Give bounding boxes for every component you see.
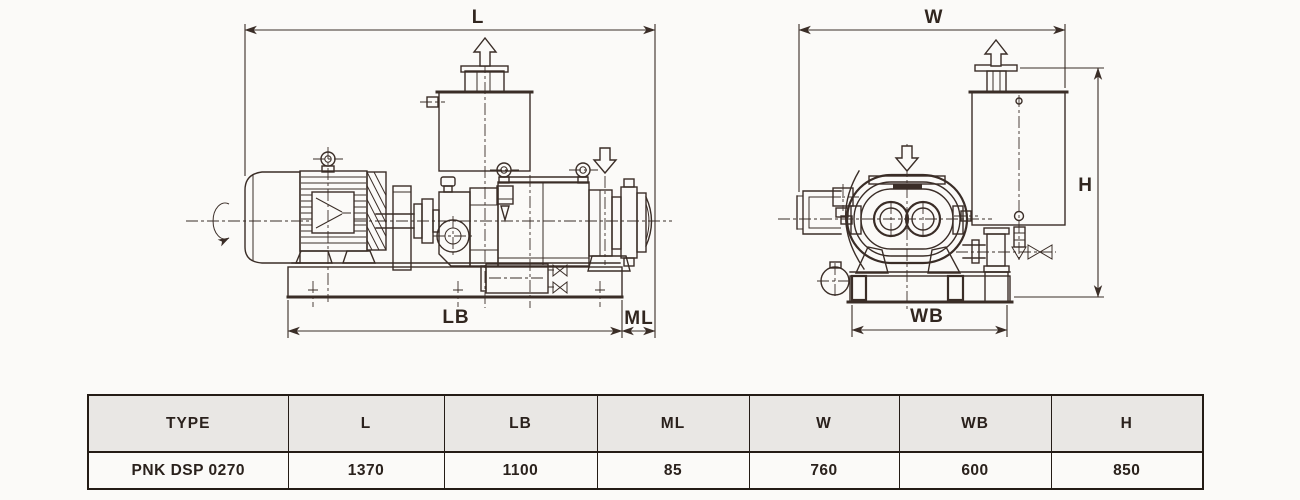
dim-label-w: W [925,7,944,28]
suction-flow-arrow-down-icon [594,148,616,173]
silencer-tank [420,38,532,171]
table-row: PNK DSP 0270 1370 1100 85 760 600 850 [88,452,1203,489]
technical-drawings: L LB ML [0,0,1300,388]
gearbox [433,177,473,266]
anchor-mark [595,281,605,307]
silencer-tank-end [954,40,1067,262]
table-header-row: TYPE L LB ML W WB H [88,395,1203,452]
dimension-W: W [799,7,1065,192]
end-view-drawing: W H WB [778,7,1104,337]
dimension-H: H [1014,68,1104,297]
cell-wb: 600 [899,452,1051,489]
dimension-L: L [245,7,655,338]
cell-w: 760 [749,452,899,489]
pump-casing [470,40,598,308]
suction-flow-arrow-down-icon [896,146,918,171]
motor [245,147,414,302]
col-header-w: W [749,395,899,452]
foot-pad [852,276,866,300]
casing-eyebolt-icon [569,163,598,183]
discharge-connection [588,179,652,271]
dim-label-wb: WB [910,306,944,327]
dimension-WB: WB [852,305,1007,337]
casing-eyebolt-icon [490,163,519,183]
col-header-h: H [1051,395,1203,452]
oil-tank [481,264,567,293]
col-header-l: L [288,395,444,452]
col-header-wb: WB [899,395,1051,452]
col-header-ml: ML [597,395,749,452]
col-header-type: TYPE [88,395,288,452]
dim-label-h: H [1078,175,1093,196]
dim-label-ml: ML [624,308,653,329]
dim-label-l: L [472,7,485,28]
discharge-flow-arrow-up-icon [474,38,496,66]
anchor-mark [308,281,318,307]
cell-lb: 1100 [444,452,597,489]
drain-pot [817,262,853,299]
blower-casing [846,171,967,269]
common-base [288,263,622,307]
side-view-drawing: L LB ML [186,7,672,338]
dim-label-lb: LB [442,307,469,328]
cell-l: 1370 [288,452,444,489]
pump-dimension-sheet: L LB ML [0,0,1300,500]
col-header-lb: LB [444,395,597,452]
fan-cover [367,172,386,250]
cell-ml: 85 [597,452,749,489]
drain-valve-icon [553,282,567,293]
anchor-mark [453,281,463,307]
grease-cup-icon [497,186,513,220]
cell-h: 850 [1051,452,1203,489]
cell-type: PNK DSP 0270 [88,452,288,489]
dimension-table: TYPE L LB ML W WB H PNK DSP 0270 1370 11… [87,394,1204,490]
foot-pad [948,276,963,300]
discharge-flow-arrow-up-icon [985,40,1007,66]
